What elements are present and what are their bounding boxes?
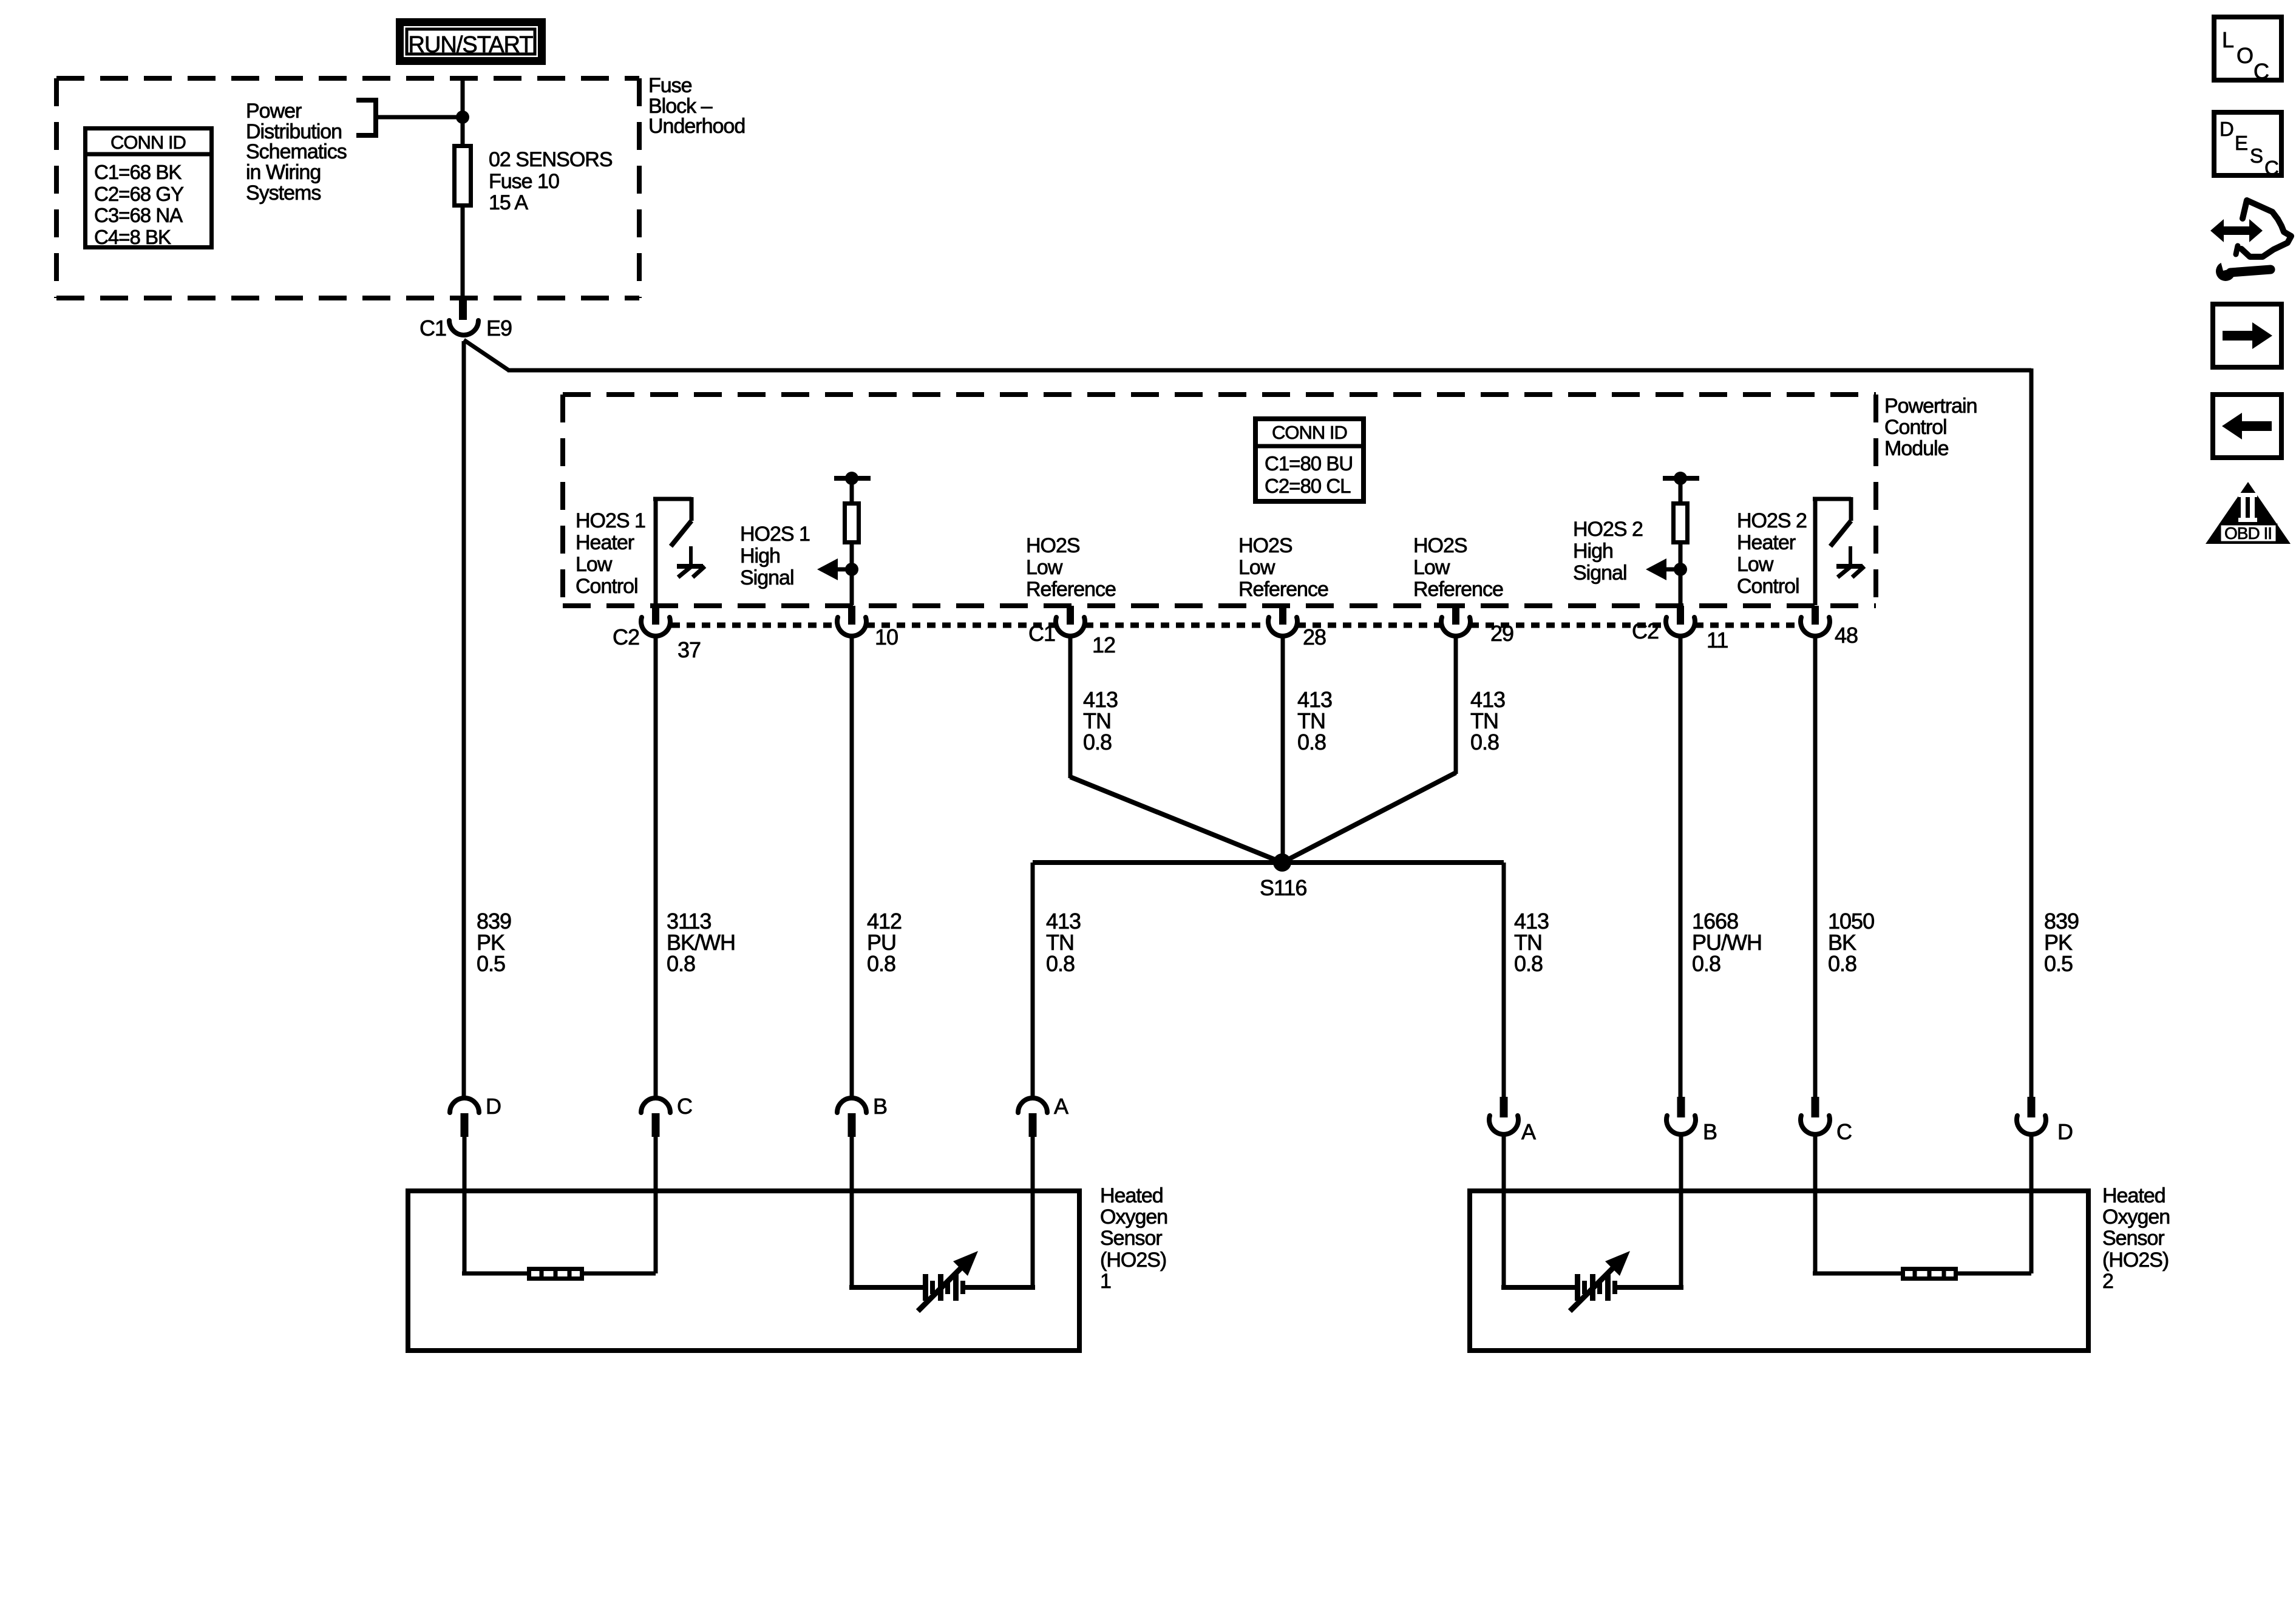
svg-text:HO2S: HO2S [1026,534,1080,557]
svg-text:Sensor: Sensor [1100,1227,1162,1250]
svg-text:Reference: Reference [1413,578,1503,601]
svg-text:A: A [1054,1094,1068,1119]
svg-text:Signal: Signal [740,566,794,589]
svg-text:Underhood: Underhood [648,115,745,138]
svg-text:High: High [740,544,780,568]
svg-text:Control: Control [576,575,638,598]
svg-text:Oxygen: Oxygen [1100,1205,1167,1229]
svg-text:(HO2S): (HO2S) [1100,1249,1166,1272]
svg-text:Schematics: Schematics [246,140,347,163]
svg-text:Heated: Heated [1100,1184,1163,1207]
svg-text:Systems: Systems [246,181,321,205]
svg-text:48: 48 [1835,623,1858,648]
svg-text:Heater: Heater [1737,531,1796,554]
svg-text:CONN ID: CONN ID [110,132,186,153]
svg-text:0.5: 0.5 [2044,951,2073,976]
svg-text:Low: Low [1737,553,1774,576]
svg-text:28: 28 [1303,625,1326,649]
svg-text:0.8: 0.8 [1828,951,1856,976]
svg-text:C2: C2 [1632,619,1659,643]
svg-text:0.8: 0.8 [1083,730,1112,754]
svg-text:Fuse 10: Fuse 10 [489,170,559,193]
svg-text:Reference: Reference [1238,578,1328,601]
svg-text:(HO2S): (HO2S) [2102,1249,2169,1272]
svg-text:HO2S 1: HO2S 1 [576,509,645,532]
svg-text:HO2S 2: HO2S 2 [1573,518,1643,541]
svg-text:11: 11 [1707,628,1728,653]
svg-text:10: 10 [875,625,898,649]
svg-text:0.8: 0.8 [667,951,695,976]
svg-text:0.8: 0.8 [1297,730,1326,754]
svg-text:Powertrain: Powertrain [1884,395,1977,418]
svg-text:Heater: Heater [576,531,634,554]
svg-text:Signal: Signal [1573,561,1627,585]
svg-text:E9: E9 [486,316,512,341]
svg-text:Oxygen: Oxygen [2102,1205,2170,1229]
svg-text:Power: Power [246,100,302,123]
svg-text:C: C [2254,59,2269,84]
svg-text:2: 2 [2102,1270,2113,1293]
svg-text:1: 1 [1100,1270,1111,1293]
svg-text:C: C [677,1094,692,1119]
svg-text:C2: C2 [613,625,639,649]
svg-text:HO2S: HO2S [1238,534,1292,557]
svg-text:C2=80 CL: C2=80 CL [1265,475,1351,497]
svg-text:0.8: 0.8 [1692,951,1720,976]
svg-text:Heated: Heated [2102,1184,2165,1207]
svg-text:S: S [2250,144,2263,167]
svg-text:B: B [873,1094,887,1119]
svg-text:D: D [2057,1119,2073,1144]
svg-text:HO2S 1: HO2S 1 [740,523,810,546]
svg-text:D: D [2220,118,2233,140]
svg-text:High: High [1573,540,1613,563]
svg-text:Sensor: Sensor [2102,1227,2164,1250]
svg-text:C4=8 BK: C4=8 BK [94,226,171,248]
svg-text:12: 12 [1092,632,1115,657]
svg-text:0.8: 0.8 [867,951,895,976]
svg-text:0.8: 0.8 [1470,730,1499,754]
svg-text:Fuse: Fuse [648,74,692,97]
svg-text:S116: S116 [1260,875,1306,900]
svg-text:HO2S 2: HO2S 2 [1737,509,1807,532]
svg-text:C1: C1 [419,316,446,341]
svg-text:L: L [2222,27,2233,52]
svg-text:C1=68 BK: C1=68 BK [94,161,182,183]
svg-text:OBD II: OBD II [2224,524,2272,543]
svg-text:0.8: 0.8 [1514,951,1543,976]
svg-text:A: A [1521,1119,1536,1144]
svg-text:Module: Module [1884,437,1949,460]
svg-text:0.5: 0.5 [477,951,505,976]
svg-text:Low: Low [576,553,613,576]
svg-text:B: B [1703,1119,1717,1144]
svg-text:29: 29 [1490,621,1513,646]
svg-text:C3=68 NA: C3=68 NA [94,204,183,226]
svg-text:O: O [2237,43,2253,68]
svg-text:RUN/START: RUN/START [409,32,534,58]
svg-text:C: C [1836,1119,1852,1144]
svg-text:Control: Control [1737,575,1799,598]
svg-text:37: 37 [678,637,701,662]
svg-text:Reference: Reference [1026,578,1116,601]
svg-text:Low: Low [1238,556,1275,579]
svg-text:C2=68 GY: C2=68 GY [94,183,184,205]
svg-text:Low: Low [1413,556,1450,579]
svg-text:C: C [2264,157,2278,179]
svg-text:Low: Low [1026,556,1063,579]
svg-text:C1=80 BU: C1=80 BU [1265,452,1353,475]
svg-text:0.8: 0.8 [1046,951,1075,976]
svg-text:C1: C1 [1028,621,1055,646]
svg-text:Control: Control [1884,416,1947,439]
svg-text:HO2S: HO2S [1413,534,1467,557]
svg-text:02 SENSORS: 02 SENSORS [489,148,613,171]
svg-text:in Wiring: in Wiring [246,161,321,184]
svg-text:CONN ID: CONN ID [1272,422,1347,443]
svg-text:D: D [486,1094,501,1119]
svg-text:E: E [2235,132,2247,154]
svg-text:15 A: 15 A [489,191,528,214]
